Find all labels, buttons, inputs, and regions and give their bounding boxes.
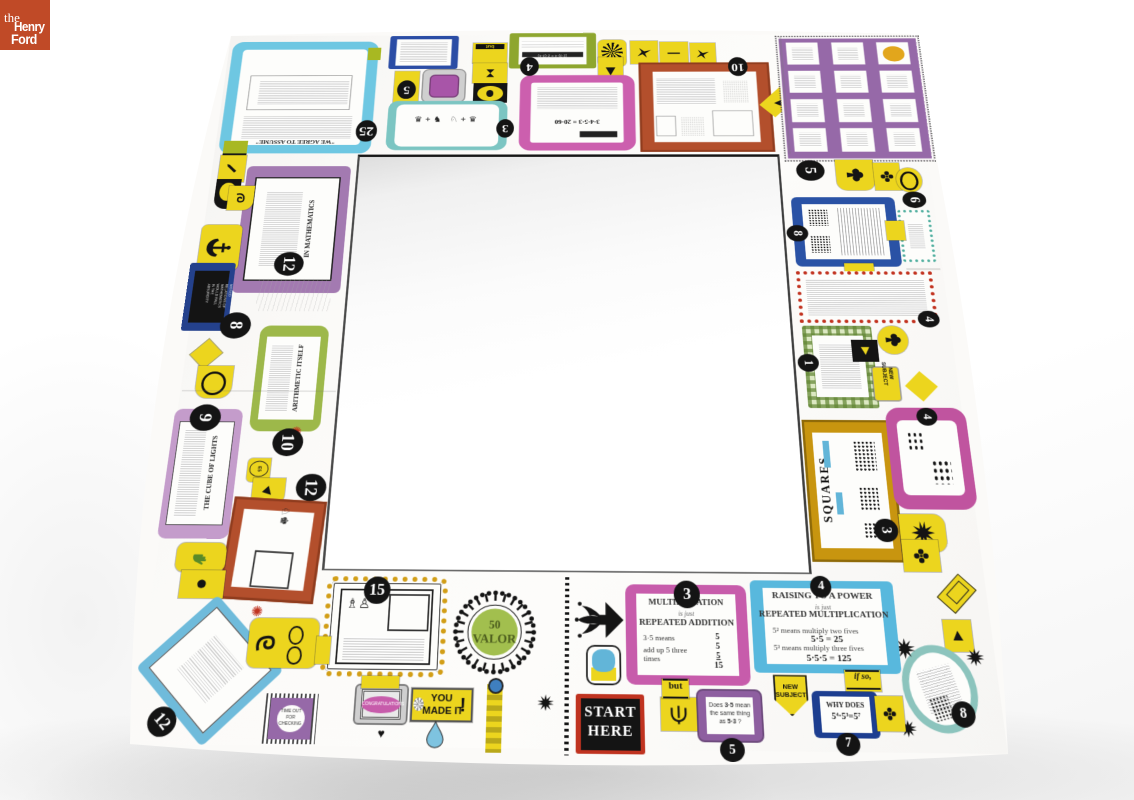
svg-text:50: 50	[489, 617, 501, 631]
svg-text:VALOR: VALOR	[472, 632, 516, 646]
